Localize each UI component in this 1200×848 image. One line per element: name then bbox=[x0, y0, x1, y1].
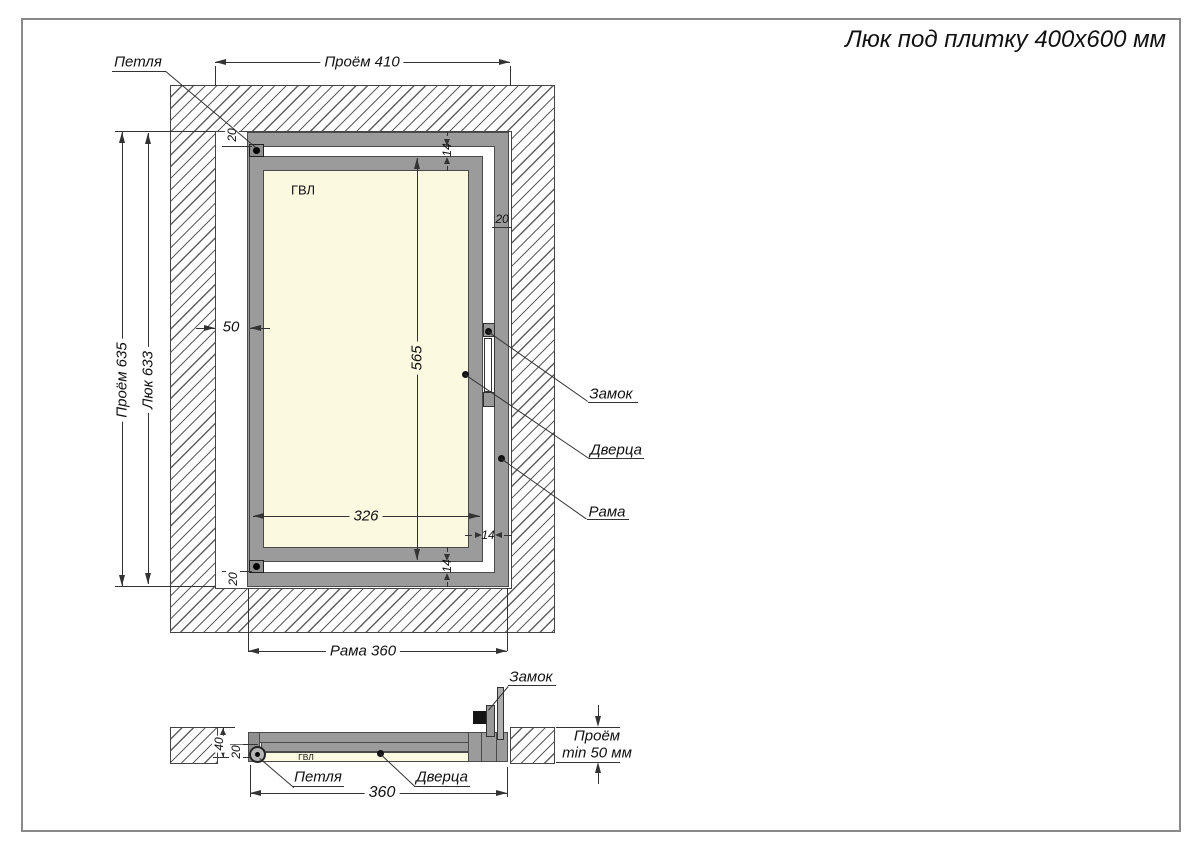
reference-line bbox=[222, 146, 252, 147]
extension-line bbox=[248, 588, 249, 651]
arrow-icon bbox=[250, 790, 261, 796]
drawing-sheet: Люк под плитку 400x600 мм ГВЛ Проём 410 … bbox=[0, 0, 1200, 848]
arrow-icon bbox=[204, 325, 215, 331]
extension-line bbox=[504, 535, 512, 536]
extension-line bbox=[447, 547, 448, 552]
door-section-label: Дверца bbox=[416, 769, 468, 786]
arrow-icon bbox=[595, 762, 601, 773]
arrow-icon bbox=[248, 648, 259, 654]
label-underline bbox=[587, 519, 629, 520]
frame-label: Рама bbox=[589, 504, 626, 521]
arrow-icon bbox=[414, 549, 420, 560]
dim-depth-40: 40 bbox=[212, 735, 226, 752]
arrow-icon bbox=[496, 648, 507, 654]
hinge-section-label: Петля bbox=[294, 769, 342, 786]
extension-line bbox=[510, 66, 511, 85]
arrow-icon bbox=[444, 573, 450, 580]
extension-line bbox=[115, 586, 215, 587]
label-underline bbox=[589, 458, 644, 459]
lock-section-label: Замок bbox=[509, 669, 552, 686]
arrow-icon bbox=[215, 59, 226, 65]
dim-door-height: 565 bbox=[409, 341, 426, 374]
wall-section-right bbox=[510, 727, 555, 764]
extension-line bbox=[507, 767, 508, 797]
arrow-icon bbox=[145, 133, 151, 144]
arrow-icon bbox=[469, 513, 480, 519]
extension-line bbox=[507, 588, 508, 651]
extension-line bbox=[556, 762, 620, 763]
hinge-pin-icon bbox=[255, 752, 260, 757]
dim-door-width: 326 bbox=[349, 508, 382, 525]
arrow-icon bbox=[495, 532, 502, 538]
arrow-icon bbox=[595, 716, 601, 727]
dim-depth-label-1: Проём bbox=[574, 728, 620, 745]
label-underline bbox=[414, 786, 470, 787]
door-label: Дверца bbox=[590, 442, 642, 459]
extension-line bbox=[115, 131, 215, 132]
label-underline bbox=[588, 402, 638, 403]
dim-hatch-height: Люк 633 bbox=[140, 347, 157, 413]
dim-opening-width: Проём 410 bbox=[320, 54, 403, 71]
hinge-pin-icon bbox=[253, 563, 260, 570]
arrow-icon bbox=[250, 325, 261, 331]
arrow-icon bbox=[220, 728, 226, 735]
arrow-icon bbox=[119, 575, 125, 586]
dim-opening-height: Проём 635 bbox=[114, 338, 131, 421]
panel-section-label: ГВЛ bbox=[298, 752, 314, 762]
label-underline bbox=[508, 685, 556, 686]
dim-gap-bottom: 14 bbox=[440, 559, 454, 572]
dim-line bbox=[598, 772, 599, 784]
hatch-door bbox=[250, 157, 482, 561]
panel-label: ГВЛ bbox=[291, 183, 315, 198]
arrow-icon bbox=[496, 790, 507, 796]
dim-20-bottom: 20 bbox=[226, 570, 240, 587]
joint-line bbox=[481, 733, 482, 761]
arrow-icon bbox=[253, 513, 264, 519]
hinge-label: Петля bbox=[114, 54, 162, 71]
extension-line bbox=[215, 66, 216, 85]
extension-line bbox=[447, 166, 448, 171]
extension-line bbox=[447, 582, 448, 587]
label-underline bbox=[112, 71, 166, 72]
extension-line bbox=[465, 535, 472, 536]
reference-line bbox=[492, 227, 512, 228]
dim-depth-20: 20 bbox=[229, 744, 243, 759]
dim-section-width: 360 bbox=[365, 784, 400, 802]
dim-frame-width: Рама 360 bbox=[326, 643, 400, 660]
dim-gap-top: 14 bbox=[440, 143, 454, 156]
panel-section-strip bbox=[261, 752, 469, 762]
lock-slot bbox=[484, 338, 492, 392]
drawing-title: Люк под плитку 400x600 мм bbox=[845, 26, 1166, 54]
arrow-icon bbox=[145, 573, 151, 584]
arrow-icon bbox=[444, 157, 450, 164]
arrow-icon bbox=[414, 158, 420, 169]
dim-20-frame: 20 bbox=[495, 212, 508, 226]
dim-depth-label-2: min 50 мм bbox=[562, 745, 632, 762]
extension-line bbox=[447, 131, 448, 136]
label-underline bbox=[292, 786, 344, 787]
wall-section-left bbox=[170, 727, 218, 764]
arrow-icon bbox=[119, 132, 125, 143]
door-section-bar bbox=[261, 742, 469, 752]
arrow-icon bbox=[499, 59, 510, 65]
lock-label: Замок bbox=[589, 386, 632, 403]
dim-gap-right: 14 bbox=[481, 528, 494, 542]
dim-offset-50: 50 bbox=[223, 319, 240, 336]
lock-section-body bbox=[473, 711, 486, 724]
